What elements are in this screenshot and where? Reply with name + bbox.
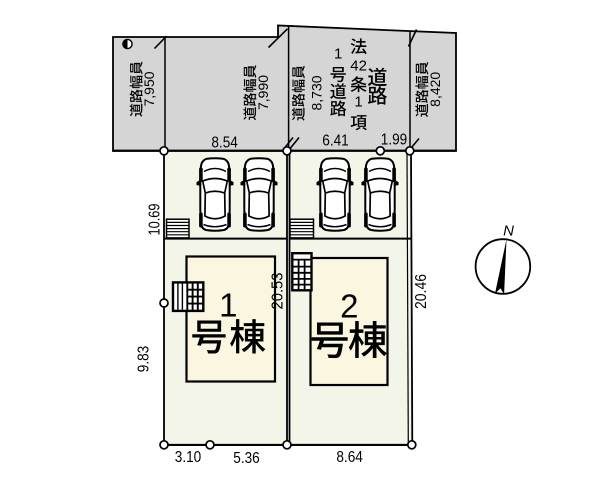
svg-text:20.46: 20.46 <box>413 274 430 309</box>
svg-text:2: 2 <box>340 288 358 325</box>
svg-text:20.53: 20.53 <box>270 273 287 310</box>
svg-text:1.99: 1.99 <box>381 132 408 149</box>
svg-text:8.54: 8.54 <box>211 135 238 152</box>
svg-text:42: 42 <box>350 57 367 74</box>
svg-text:10.69: 10.69 <box>147 204 164 236</box>
svg-text:5.36: 5.36 <box>233 450 260 467</box>
svg-text:3.10: 3.10 <box>175 449 202 466</box>
svg-text:1: 1 <box>354 93 362 110</box>
svg-text:N: N <box>503 223 514 240</box>
svg-text:9.83: 9.83 <box>136 346 153 373</box>
svg-text:7,990: 7,990 <box>255 75 271 110</box>
svg-text:1: 1 <box>219 286 237 323</box>
svg-text:8.64: 8.64 <box>336 449 363 466</box>
svg-text:1: 1 <box>334 45 342 62</box>
svg-text:7,950: 7,950 <box>141 71 157 106</box>
svg-text:6.41: 6.41 <box>322 133 349 150</box>
svg-text:8,420: 8,420 <box>427 72 443 107</box>
svg-text:8,730: 8,730 <box>308 75 324 110</box>
